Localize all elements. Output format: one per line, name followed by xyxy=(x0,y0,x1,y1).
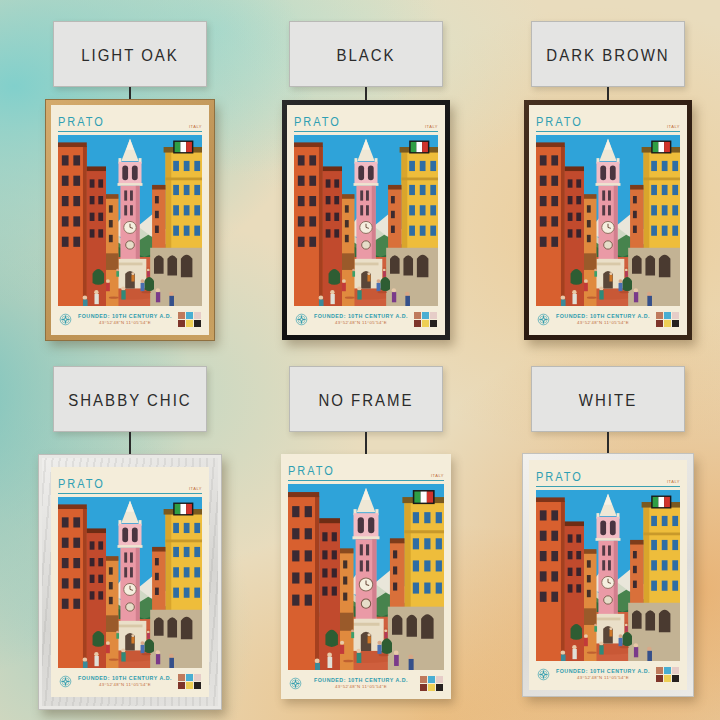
compass-icon xyxy=(59,313,72,326)
color-swatch xyxy=(664,675,671,682)
color-swatch xyxy=(436,684,443,691)
poster-header: PRATO ITALY xyxy=(536,112,680,132)
color-swatch xyxy=(656,667,663,674)
poster-header: PRATO ITALY xyxy=(58,474,202,494)
picture-frame-light-oak: PRATO ITALY xyxy=(46,100,214,340)
poster-caption: FOUNDED: 10TH CENTURY A.D. 43°52'48"N 11… xyxy=(550,669,656,680)
poster-illustration xyxy=(288,484,444,670)
poster-header: PRATO ITALY xyxy=(288,461,444,481)
founded-text: FOUNDED: 10TH CENTURY A.D. xyxy=(308,314,414,319)
picture-frame-dark-brown: PRATO ITALY xyxy=(524,100,692,340)
color-swatch xyxy=(656,675,663,682)
poster-caption: FOUNDED: 10TH CENTURY A.D. 43°52'48"N 11… xyxy=(550,314,656,325)
street-scene-art xyxy=(536,490,680,661)
street-scene-art xyxy=(536,135,680,306)
coordinates-text: 43°52'48"N 11°05'54"E xyxy=(72,683,178,687)
founded-text: FOUNDED: 10TH CENTURY A.D. xyxy=(72,676,178,681)
color-swatch-grid xyxy=(420,676,443,691)
color-swatch xyxy=(656,320,663,327)
coordinates-text: 43°52'48"N 11°05'54"E xyxy=(550,676,656,680)
color-swatch xyxy=(672,312,679,319)
color-swatch xyxy=(428,684,435,691)
poster-country-label: ITALY xyxy=(667,124,680,129)
poster-title: PRATO xyxy=(58,477,105,490)
street-scene-art xyxy=(58,135,202,306)
compass-icon xyxy=(295,313,308,326)
frame-option-label-light-oak: LIGHT OAK xyxy=(53,21,207,87)
compass-icon xyxy=(289,677,302,690)
founded-text: FOUNDED: 10TH CENTURY A.D. xyxy=(302,678,420,683)
poster-title: PRATO xyxy=(536,470,583,483)
hanger-line xyxy=(129,87,131,100)
poster-footer: FOUNDED: 10TH CENTURY A.D. 43°52'48"N 11… xyxy=(288,673,444,694)
color-swatch xyxy=(194,674,201,681)
frame-option-label-dark-brown: DARK BROWN xyxy=(531,21,685,87)
coordinates-text: 43°52'48"N 11°05'54"E xyxy=(550,321,656,325)
poster-illustration xyxy=(58,497,202,668)
compass-icon xyxy=(537,668,550,681)
poster-caption: FOUNDED: 10TH CENTURY A.D. 43°52'48"N 11… xyxy=(302,678,420,689)
color-swatch xyxy=(664,667,671,674)
poster-illustration xyxy=(294,135,438,306)
color-swatch xyxy=(194,320,201,327)
color-swatch xyxy=(430,312,437,319)
variant-cell-shabby-chic: SHABBY CHIC PRATO ITALY xyxy=(10,366,250,710)
color-swatch xyxy=(428,676,435,683)
picture-frame-shabby-chic: PRATO ITALY xyxy=(38,454,222,710)
color-swatch xyxy=(414,312,421,319)
color-swatch xyxy=(664,312,671,319)
color-swatch xyxy=(422,320,429,327)
travel-poster: PRATO ITALY xyxy=(51,105,209,335)
poster-country-label: ITALY xyxy=(667,479,680,484)
frame-option-label-no-frame: NO FRAME xyxy=(289,366,443,432)
poster-illustration xyxy=(536,490,680,661)
color-swatch xyxy=(672,320,679,327)
color-swatch xyxy=(178,320,185,327)
italy-flag-icon xyxy=(651,141,671,154)
color-swatch xyxy=(186,320,193,327)
poster-country-label: ITALY xyxy=(189,486,202,491)
poster-illustration xyxy=(536,135,680,306)
picture-frame-black: PRATO ITALY xyxy=(282,100,450,340)
street-scene-art xyxy=(288,484,444,670)
hanger-line xyxy=(607,87,609,100)
color-swatch xyxy=(414,320,421,327)
variant-cell-black: BLACK PRATO ITALY xyxy=(246,21,486,340)
poster-country-label: ITALY xyxy=(431,473,444,478)
color-swatch xyxy=(186,682,193,689)
picture-frame-white: PRATO ITALY xyxy=(523,454,693,696)
color-swatch xyxy=(420,684,427,691)
poster-footer: FOUNDED: 10TH CENTURY A.D. 43°52'48"N 11… xyxy=(294,309,438,330)
street-scene-art xyxy=(294,135,438,306)
poster-header: PRATO ITALY xyxy=(58,112,202,132)
color-swatch xyxy=(186,312,193,319)
variant-cell-light-oak: LIGHT OAK PRATO ITALY xyxy=(10,21,250,340)
variant-cell-no-frame: NO FRAME PRATO ITALY xyxy=(246,366,486,699)
color-swatch-grid xyxy=(178,674,201,689)
italy-flag-icon xyxy=(173,503,193,516)
poster-title: PRATO xyxy=(536,115,583,128)
color-swatch xyxy=(420,676,427,683)
poster-title: PRATO xyxy=(288,464,335,477)
color-swatch xyxy=(194,312,201,319)
compass-icon xyxy=(537,313,550,326)
color-swatch xyxy=(656,312,663,319)
picture-frame-none: PRATO ITALY xyxy=(281,454,451,699)
coordinates-text: 43°52'48"N 11°05'54"E xyxy=(72,321,178,325)
poster-footer: FOUNDED: 10TH CENTURY A.D. 43°52'48"N 11… xyxy=(58,671,202,692)
hanger-line xyxy=(365,432,367,454)
poster-footer: FOUNDED: 10TH CENTURY A.D. 43°52'48"N 11… xyxy=(58,309,202,330)
poster-title: PRATO xyxy=(294,115,341,128)
color-swatch-grid xyxy=(178,312,201,327)
hanger-line xyxy=(365,87,367,100)
poster-header: PRATO ITALY xyxy=(294,112,438,132)
color-swatch xyxy=(436,676,443,683)
travel-poster: PRATO ITALY xyxy=(529,460,687,690)
color-swatch xyxy=(430,320,437,327)
founded-text: FOUNDED: 10TH CENTURY A.D. xyxy=(550,314,656,319)
color-swatch xyxy=(664,320,671,327)
variant-cell-white: WHITE PRATO ITALY xyxy=(488,366,720,696)
poster-caption: FOUNDED: 10TH CENTURY A.D. 43°52'48"N 11… xyxy=(308,314,414,325)
color-swatch-grid xyxy=(656,312,679,327)
travel-poster: PRATO ITALY xyxy=(529,105,687,335)
travel-poster: PRATO ITALY xyxy=(287,105,445,335)
coordinates-text: 43°52'48"N 11°05'54"E xyxy=(308,321,414,325)
color-swatch-grid xyxy=(656,667,679,682)
hanger-line xyxy=(129,432,131,454)
poster-country-label: ITALY xyxy=(425,124,438,129)
color-swatch xyxy=(672,675,679,682)
frame-option-label-white: WHITE xyxy=(531,366,685,432)
color-swatch xyxy=(672,667,679,674)
italy-flag-icon xyxy=(409,141,429,154)
color-swatch xyxy=(178,674,185,681)
poster-caption: FOUNDED: 10TH CENTURY A.D. 43°52'48"N 11… xyxy=(72,676,178,687)
hanger-line xyxy=(607,432,609,454)
color-swatch xyxy=(422,312,429,319)
travel-poster: PRATO ITALY xyxy=(51,467,209,697)
italy-flag-icon xyxy=(651,496,671,509)
color-swatch xyxy=(178,312,185,319)
poster-title: PRATO xyxy=(58,115,105,128)
founded-text: FOUNDED: 10TH CENTURY A.D. xyxy=(72,314,178,319)
street-scene-art xyxy=(58,497,202,668)
color-swatch-grid xyxy=(414,312,437,327)
poster-footer: FOUNDED: 10TH CENTURY A.D. 43°52'48"N 11… xyxy=(536,664,680,685)
frame-option-label-black: BLACK xyxy=(289,21,443,87)
poster-illustration xyxy=(58,135,202,306)
color-swatch xyxy=(186,674,193,681)
color-swatch xyxy=(194,682,201,689)
travel-poster: PRATO ITALY xyxy=(281,454,451,699)
poster-footer: FOUNDED: 10TH CENTURY A.D. 43°52'48"N 11… xyxy=(536,309,680,330)
poster-caption: FOUNDED: 10TH CENTURY A.D. 43°52'48"N 11… xyxy=(72,314,178,325)
color-swatch xyxy=(178,682,185,689)
gallery-wall: { "product": { "poster_city": "Prato tra… xyxy=(0,0,720,720)
coordinates-text: 43°52'48"N 11°05'54"E xyxy=(302,685,420,689)
poster-country-label: ITALY xyxy=(189,124,202,129)
italy-flag-icon xyxy=(173,141,193,154)
founded-text: FOUNDED: 10TH CENTURY A.D. xyxy=(550,669,656,674)
italy-flag-icon xyxy=(413,490,435,504)
variant-cell-dark-brown: DARK BROWN PRATO ITALY xyxy=(488,21,720,340)
frame-option-label-shabby-chic: SHABBY CHIC xyxy=(53,366,207,432)
poster-header: PRATO ITALY xyxy=(536,467,680,487)
compass-icon xyxy=(59,675,72,688)
